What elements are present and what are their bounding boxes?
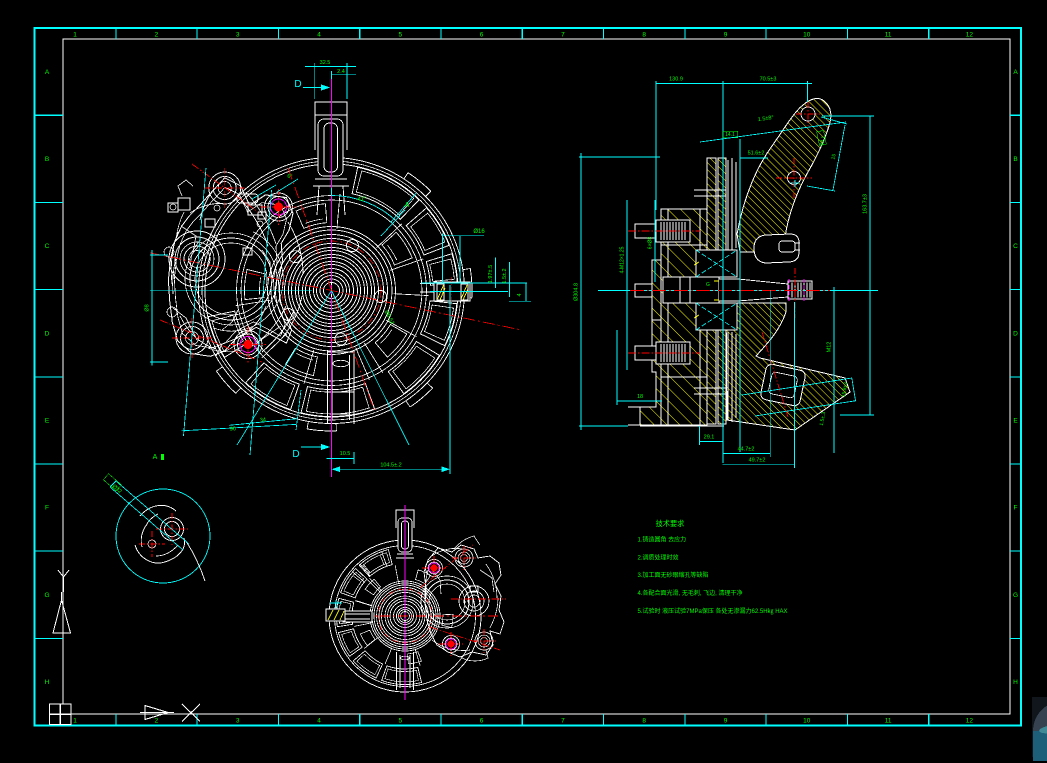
svg-text:4: 4 (517, 293, 523, 296)
svg-text:6°: 6° (287, 174, 292, 180)
svg-text:B: B (1013, 156, 1017, 163)
svg-text:12: 12 (966, 718, 974, 725)
svg-text:4: 4 (317, 32, 321, 39)
svg-text:1.5±.2: 1.5±.2 (502, 268, 508, 283)
svg-text:E: E (1013, 418, 1018, 425)
svg-text:A: A (45, 69, 50, 76)
svg-text:技术要求: 技术要求 (656, 519, 685, 528)
svg-text:G: G (706, 282, 710, 288)
svg-text:5.试验时 液压试验7MPa保压 各处无渗漏力62.5H㎏: 5.试验时 液压试验7MPa保压 各处无渗漏力62.5H㎏ HAX (638, 607, 788, 616)
svg-text:3: 3 (236, 32, 240, 39)
svg-text:F: F (1014, 505, 1018, 512)
svg-text:3.加工面无砂眼缩孔等缺陷: 3.加工面无砂眼缩孔等缺陷 (638, 571, 709, 579)
svg-text:F: F (45, 505, 49, 512)
svg-text:2.调质处理时效: 2.调质处理时效 (638, 554, 679, 562)
svg-text:41°: 41° (357, 197, 367, 203)
svg-text:3: 3 (236, 718, 240, 725)
svg-text:11: 11 (885, 718, 892, 725)
svg-text:163.7±3: 163.7±3 (863, 194, 869, 214)
svg-text:104.5±.2: 104.5±.2 (380, 463, 401, 469)
svg-text:B: B (45, 156, 49, 163)
svg-text:6: 6 (480, 32, 484, 39)
svg-text:32.5: 32.5 (320, 60, 331, 66)
svg-text:10: 10 (803, 32, 811, 39)
svg-text:4-M12×1.25: 4-M12×1.25 (620, 246, 626, 273)
svg-text:H: H (1013, 679, 1018, 686)
svg-text:2.4: 2.4 (337, 69, 345, 75)
svg-text:1.97±.5: 1.97±.5 (488, 265, 494, 283)
svg-text:29.1: 29.1 (704, 435, 715, 441)
svg-text:130.9: 130.9 (669, 77, 683, 83)
svg-text:10: 10 (803, 718, 811, 725)
svg-text:1: 1 (73, 718, 77, 725)
svg-text:12: 12 (966, 32, 974, 39)
svg-text:5: 5 (398, 718, 402, 725)
svg-text:90: 90 (230, 426, 237, 433)
svg-text:11: 11 (885, 32, 892, 39)
svg-text:6: 6 (480, 718, 484, 725)
svg-text:4.各配合面光滑, 无毛刺, 飞边, 清理干净: 4.各配合面光滑, 无毛刺, 飞边, 清理干净 (638, 589, 743, 597)
svg-text:A: A (405, 202, 410, 209)
svg-text:9: 9 (724, 32, 728, 39)
svg-text:1: 1 (73, 32, 77, 39)
svg-text:5: 5 (398, 32, 402, 39)
svg-text:8: 8 (642, 32, 646, 39)
svg-text:D: D (1013, 330, 1018, 337)
svg-text:D: D (45, 330, 50, 337)
svg-text:H: H (45, 679, 50, 686)
svg-text:C: C (1013, 243, 1018, 250)
svg-text:2: 2 (155, 32, 159, 39)
svg-text:E: E (45, 418, 50, 425)
svg-text:44.7±2: 44.7±2 (738, 447, 755, 453)
svg-text:D: D (294, 79, 301, 90)
svg-text:2: 2 (155, 718, 159, 725)
svg-text:34: 34 (260, 417, 267, 424)
svg-text:70.5±3: 70.5±3 (760, 77, 777, 83)
svg-text:A: A (153, 454, 158, 461)
svg-text:10.5: 10.5 (340, 451, 351, 457)
svg-text:G: G (1013, 592, 1018, 599)
svg-text:G: G (44, 592, 49, 599)
svg-text:18: 18 (637, 394, 643, 400)
svg-text:4: 4 (317, 718, 321, 725)
svg-text:7: 7 (561, 718, 565, 725)
svg-text:9: 9 (724, 718, 728, 725)
svg-text:1.铸造圆角 去应力: 1.铸造圆角 去应力 (638, 536, 687, 544)
svg-text:M12: M12 (827, 342, 833, 353)
svg-text:7: 7 (561, 32, 565, 39)
svg-text:Ø8: Ø8 (145, 304, 151, 311)
svg-text:C: C (45, 243, 50, 250)
svg-text:49.7±2: 49.7±2 (749, 458, 766, 464)
svg-text:D: D (292, 449, 299, 460)
svg-text:Ø304.8: Ø304.8 (574, 283, 580, 301)
svg-text:Ø16: Ø16 (473, 229, 485, 235)
svg-text:51.6±2: 51.6±2 (748, 151, 765, 157)
svg-text:6×Ø8: 6×Ø8 (648, 237, 654, 250)
svg-text:A: A (1013, 69, 1018, 76)
svg-text:8: 8 (642, 718, 646, 725)
